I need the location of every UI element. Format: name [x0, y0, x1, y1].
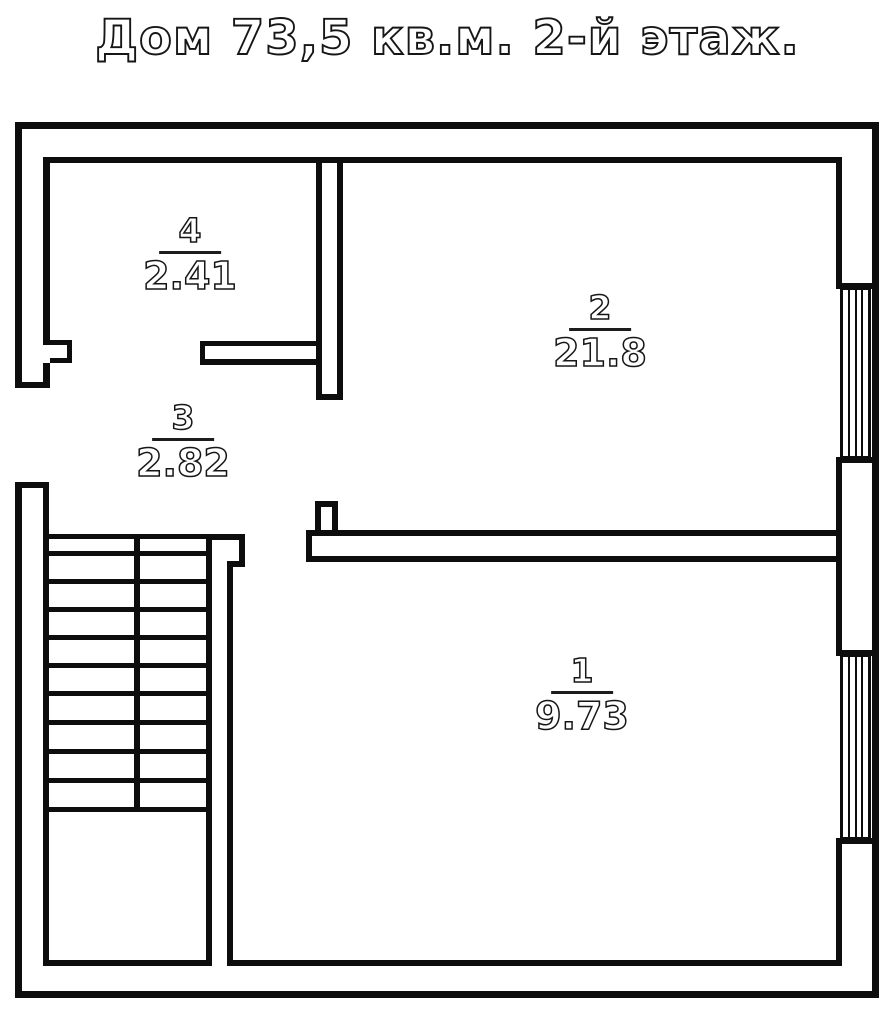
room2-wall-left-cap: [316, 394, 343, 400]
stair-tread: [49, 807, 206, 812]
room2-wall-left-inner: [337, 157, 343, 400]
room1-wall-left: [227, 561, 233, 966]
stair-flight-divider: [134, 534, 140, 812]
outer-wall-top: [15, 122, 879, 129]
room-label-1: 1 9.73: [535, 654, 629, 735]
stair-tread: [49, 749, 206, 754]
stair-tread: [49, 534, 206, 539]
stair-tread: [49, 663, 206, 668]
outer-wall-bottom: [15, 991, 879, 998]
stair-tread: [49, 778, 206, 783]
inner-wall-bottom-room1: [227, 960, 842, 966]
room-number: 1: [571, 654, 594, 687]
window-room2-icon: [840, 287, 871, 459]
stair-tread: [49, 551, 206, 556]
room4-wall-bottom-outer: [200, 341, 318, 346]
stair-tread: [49, 635, 206, 640]
divider-wall-left-cap: [306, 530, 312, 562]
room4-door-jamb-cap: [67, 340, 72, 363]
window-pane-line: [855, 290, 857, 456]
divider-wall-bottom: [306, 556, 842, 562]
room2-door-jamb-cap: [315, 501, 338, 507]
outer-wall-right: [872, 122, 879, 998]
room-label-4: 4 2.41: [143, 214, 237, 295]
stair-tread: [49, 691, 206, 696]
room4-wall-left: [43, 157, 50, 345]
room-label-3: 3 2.82: [136, 401, 230, 482]
inner-wall-top: [44, 157, 842, 163]
room-label-2: 2 21.8: [553, 291, 647, 372]
inner-wall-right-seg3: [836, 560, 842, 652]
inner-wall-bottom-stair: [44, 960, 212, 966]
room-number: 4: [179, 214, 202, 247]
floor-title: Дом 73,5 кв.м. 2-й этаж.: [0, 10, 895, 66]
window-room2-jamb-bottom: [836, 457, 879, 463]
window-pane-line: [848, 290, 850, 456]
stair-tread: [49, 720, 206, 725]
floor-plan: Дом 73,5 кв.м. 2-й этаж.: [0, 0, 895, 1024]
window-room1-jamb-bottom: [836, 838, 879, 844]
room-number: 3: [172, 401, 195, 434]
left-wall-opening-cap-top: [15, 382, 50, 388]
inner-wall-right-seg4: [836, 842, 842, 966]
stair-tread: [49, 607, 206, 612]
window-pane-line: [861, 657, 863, 837]
room-area: 2.82: [136, 444, 230, 482]
inner-wall-right-seg2: [836, 461, 842, 562]
stair-wall-right: [206, 534, 212, 966]
stair-tread: [49, 579, 206, 584]
window-room1-icon: [840, 654, 871, 840]
window-pane-line: [861, 290, 863, 456]
room-number: 2: [589, 291, 612, 324]
window-pane-line: [855, 657, 857, 837]
window-pane-line: [848, 657, 850, 837]
room-area: 9.73: [535, 697, 629, 735]
room4-wall-bottom-cap: [200, 341, 205, 365]
outer-wall-left-lower: [15, 482, 22, 998]
room2-wall-left-outer: [316, 157, 322, 400]
room4-wall-bottom-inner: [200, 359, 318, 365]
room-area: 2.41: [143, 257, 237, 295]
inner-wall-right-seg1: [836, 157, 842, 287]
divider-wall-top: [306, 530, 842, 536]
outer-wall-left-upper: [15, 122, 22, 388]
room-area: 21.8: [553, 334, 647, 372]
